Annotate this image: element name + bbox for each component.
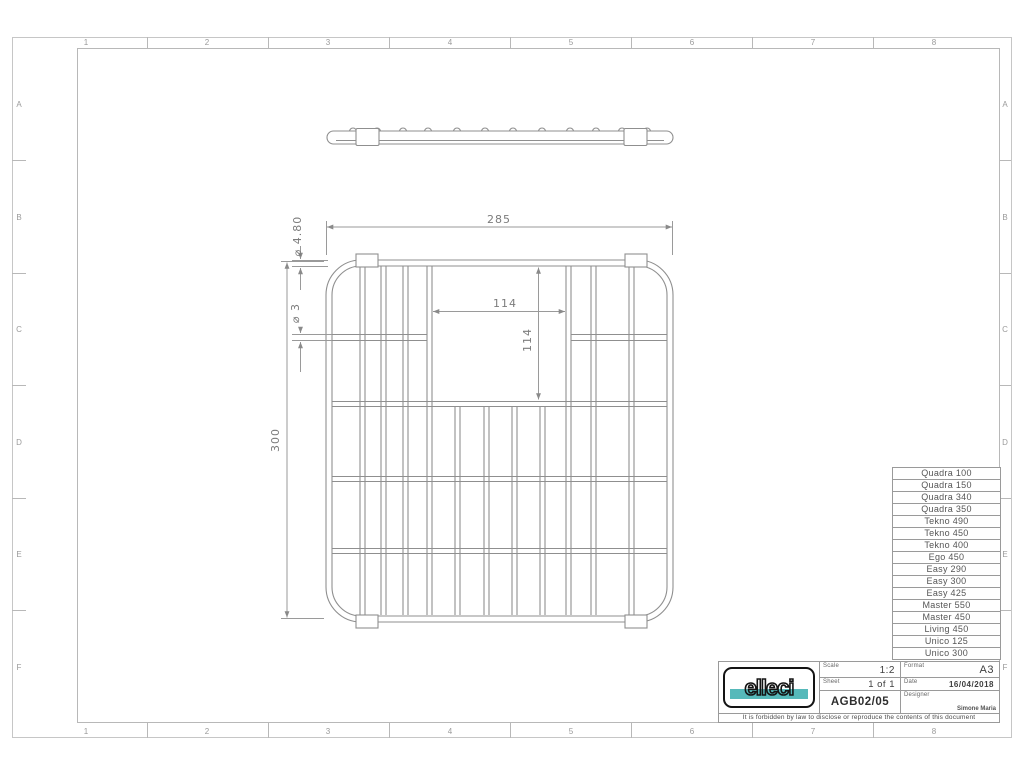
date-cell: Date 16/04/2018 [901,678,999,691]
dim-text-width: 285 [487,213,511,226]
model-row: Unico 300 [893,648,1000,659]
dim-text-height: 300 [269,428,282,452]
sheet-label: Sheet [823,679,840,685]
dim-text-grid-wire-dia: ⌀ 3 [289,303,302,323]
format-value: A3 [980,664,994,676]
date-value: 16/04/2018 [949,680,994,689]
sheet-value: 1 of 1 [868,679,895,690]
model-row: Quadra 340 [893,492,1000,504]
designer-cell: Designer Simone Maria [901,691,999,713]
zone-label: D [1002,438,1008,447]
model-row: Tekno 490 [893,516,1000,528]
zone-label: 7 [811,727,816,736]
dim-text-cutout-width: 114 [493,297,517,310]
zone-label: E [1002,550,1007,559]
zone-label: C [16,325,22,334]
model-row: Easy 425 [893,588,1000,600]
zone-label: C [1002,325,1008,334]
title-block: elleci Scale 1:2 Sheet 1 of 1 AGB02/05 F… [718,661,1000,723]
model-row: Living 450 [893,624,1000,636]
model-row: Tekno 450 [893,528,1000,540]
model-row: Quadra 100 [893,468,1000,480]
zone-label: 2 [205,727,210,736]
scale-cell: Scale 1:2 [820,662,900,678]
zone-label: 3 [326,727,331,736]
grid-foot [625,254,647,267]
model-row: Tekno 400 [893,540,1000,552]
drawing-code-cell: AGB02/05 [820,691,900,713]
zone-label: A [1002,100,1008,109]
dimensions: 285 300 ⌀ 4.80 ⌀ 3 114 114 [269,213,673,619]
zone-label: 3 [326,38,331,47]
zone-label: B [1002,213,1007,222]
zone-label: B [16,213,21,222]
grid-foot [356,254,378,267]
legal-notice: It is forbidden by law to disclose or re… [719,713,999,722]
zone-label: F [17,663,22,672]
model-row: Master 450 [893,612,1000,624]
grid-foot [356,615,378,628]
model-row: Unico 125 [893,636,1000,648]
grid-horizontal-wires [332,335,667,554]
zone-label: 5 [569,38,574,47]
zone-label: 8 [932,727,937,736]
model-row: Ego 450 [893,552,1000,564]
model-row: Master 550 [893,600,1000,612]
zone-label: 8 [932,38,937,47]
zone-label: E [16,550,21,559]
zone-label: 5 [569,727,574,736]
side-view-foot [624,129,647,146]
grid-frame-inner [332,266,667,616]
designer-value: Simone Maria [957,706,996,712]
zone-label: 2 [205,38,210,47]
dim-text-frame-wire-dia: ⌀ 4.80 [291,216,304,257]
logo-cell: elleci [719,662,820,713]
format-label: Format [904,663,924,669]
zone-label: A [16,100,22,109]
elleci-logo: elleci [723,667,815,708]
sheet-cell: Sheet 1 of 1 [820,678,900,691]
grid-front-view [326,254,673,628]
cad-drawing-svg: 1 2 3 4 5 6 7 8 1 2 3 4 5 6 7 8 A B C D … [0,0,1024,768]
grid-frame-outer [326,260,673,622]
zone-label: F [1003,663,1008,672]
title-block-middle-column: Scale 1:2 Sheet 1 of 1 AGB02/05 [820,662,901,713]
zone-label: 6 [690,38,695,47]
date-label: Date [904,679,917,685]
side-view-foot [356,129,379,146]
zone-label: 1 [84,38,89,47]
scale-value: 1:2 [880,665,895,676]
model-row: Quadra 350 [893,504,1000,516]
grid-vertical-wires-full [360,266,634,615]
zone-label: 4 [448,727,453,736]
drawing-code: AGB02/05 [820,691,900,713]
brand-name: elleci [744,677,793,699]
grid-side-view [327,128,673,146]
designer-label: Designer [904,692,930,698]
title-block-right-column: Format A3 Date 16/04/2018 Designer Simon… [901,662,999,713]
grid-foot [625,615,647,628]
extension-lines [281,221,673,619]
model-row: Easy 290 [893,564,1000,576]
grid-vertical-wires-short [455,406,545,615]
scale-label: Scale [823,663,839,669]
model-row: Easy 300 [893,576,1000,588]
zone-label: 1 [84,727,89,736]
drawing-sheet: 1 2 3 4 5 6 7 8 1 2 3 4 5 6 7 8 A B C D … [0,0,1024,768]
model-row: Quadra 150 [893,480,1000,492]
dim-text-cutout-height: 114 [521,328,534,352]
zone-label: D [16,438,22,447]
format-cell: Format A3 [901,662,999,678]
zone-label: 7 [811,38,816,47]
zone-label: 6 [690,727,695,736]
model-table: Quadra 100 Quadra 150 Quadra 340 Quadra … [892,467,1001,660]
zone-label: 4 [448,38,453,47]
